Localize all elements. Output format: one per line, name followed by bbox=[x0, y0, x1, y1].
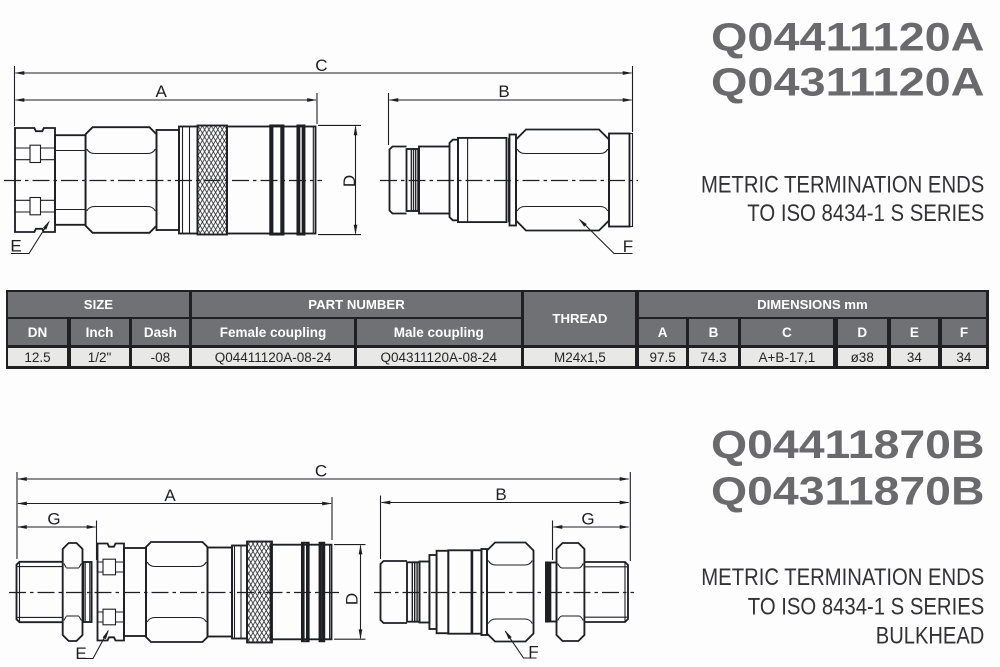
svg-text:E: E bbox=[75, 644, 86, 663]
svg-text:C: C bbox=[315, 56, 327, 75]
svg-text:B: B bbox=[495, 485, 506, 504]
svg-text:B: B bbox=[498, 82, 509, 101]
svg-text:G: G bbox=[47, 509, 60, 528]
svg-text:A: A bbox=[156, 82, 168, 101]
svg-text:D: D bbox=[343, 593, 362, 605]
svg-text:F: F bbox=[528, 643, 538, 662]
svg-text:E: E bbox=[10, 237, 21, 256]
svg-text:A: A bbox=[164, 486, 176, 505]
svg-text:C: C bbox=[315, 462, 327, 481]
svg-text:D: D bbox=[340, 175, 359, 187]
svg-text:G: G bbox=[581, 509, 594, 528]
svg-text:F: F bbox=[623, 237, 633, 256]
